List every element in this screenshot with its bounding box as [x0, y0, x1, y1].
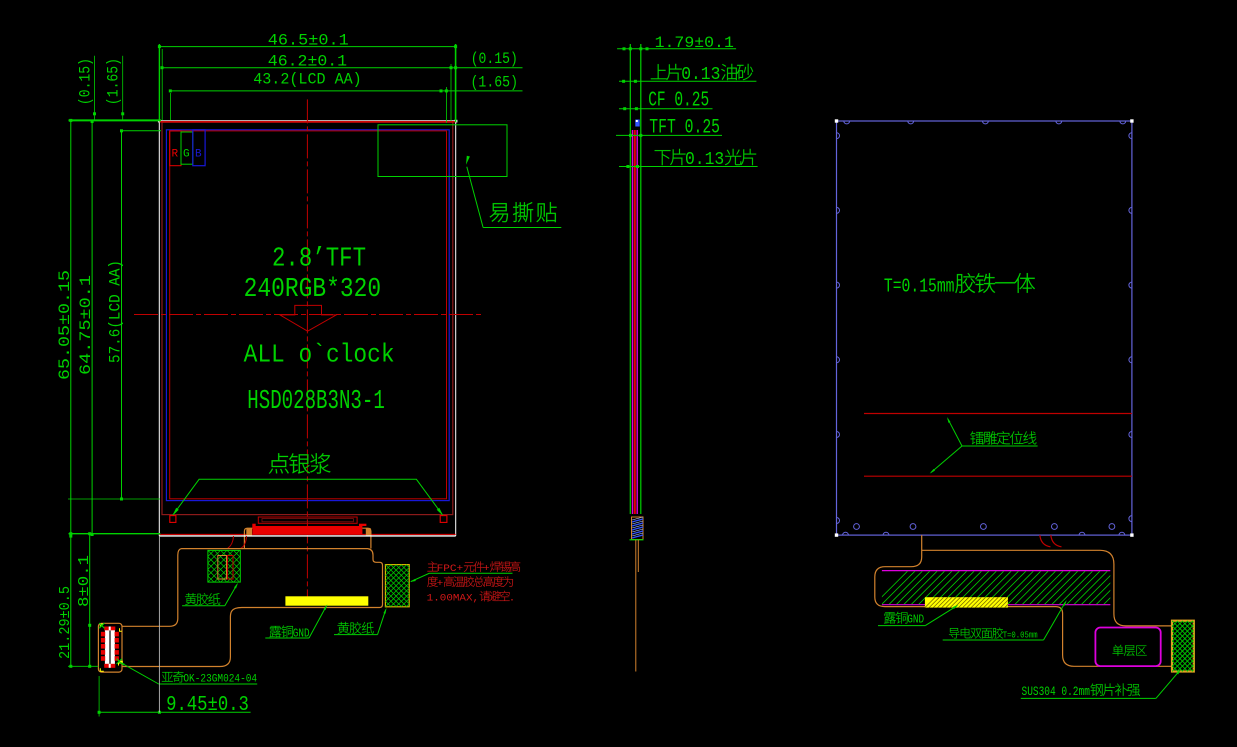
- svg-text:46.2±0.1: 46.2±0.1: [268, 52, 347, 70]
- svg-text:ALL o`clock: ALL o`clock: [244, 340, 395, 370]
- svg-text:R: R: [172, 149, 179, 161]
- svg-text:8±0.1: 8±0.1: [76, 555, 93, 607]
- svg-text:HSD028B3N3-1: HSD028B3N3-1: [247, 387, 384, 417]
- svg-text:46.5±0.1: 46.5±0.1: [268, 31, 349, 49]
- svg-text:9.45±0.3: 9.45±0.3: [166, 694, 249, 717]
- svg-text:SUS304 0.2mm: SUS304 0.2mm: [1022, 684, 1091, 699]
- svg-text:1.00MAX,: 1.00MAX,: [427, 593, 479, 605]
- svg-text:2.8’TFT: 2.8’TFT: [272, 245, 366, 275]
- svg-text:.: .: [509, 593, 516, 605]
- svg-text:43.2(LCD AA): 43.2(LCD AA): [253, 71, 362, 89]
- svg-text:TFT 0.25: TFT 0.25: [649, 117, 720, 140]
- svg-text:21.29±0.5: 21.29±0.5: [57, 586, 74, 659]
- svg-text:B: B: [195, 149, 202, 161]
- svg-text:(0.15): (0.15): [471, 50, 518, 68]
- svg-text:240RGB*320: 240RGB*320: [244, 275, 382, 305]
- svg-text:(1.65): (1.65): [105, 58, 123, 105]
- svg-text:65.05±0.15: 65.05±0.15: [56, 270, 74, 380]
- svg-text:T=0.05mm: T=0.05mm: [1003, 630, 1038, 641]
- svg-text:(1.65): (1.65): [471, 73, 519, 91]
- svg-text:GND: GND: [907, 614, 924, 627]
- svg-text:57.6(LCD AA): 57.6(LCD AA): [107, 260, 125, 363]
- svg-text:+: +: [437, 578, 444, 590]
- svg-text:G: G: [183, 149, 190, 161]
- svg-text:1.79±0.1: 1.79±0.1: [655, 34, 734, 52]
- svg-text:(0.15): (0.15): [77, 58, 95, 105]
- svg-text:T=0.15mm: T=0.15mm: [884, 275, 955, 297]
- svg-text:64.75±0.1: 64.75±0.1: [77, 275, 95, 375]
